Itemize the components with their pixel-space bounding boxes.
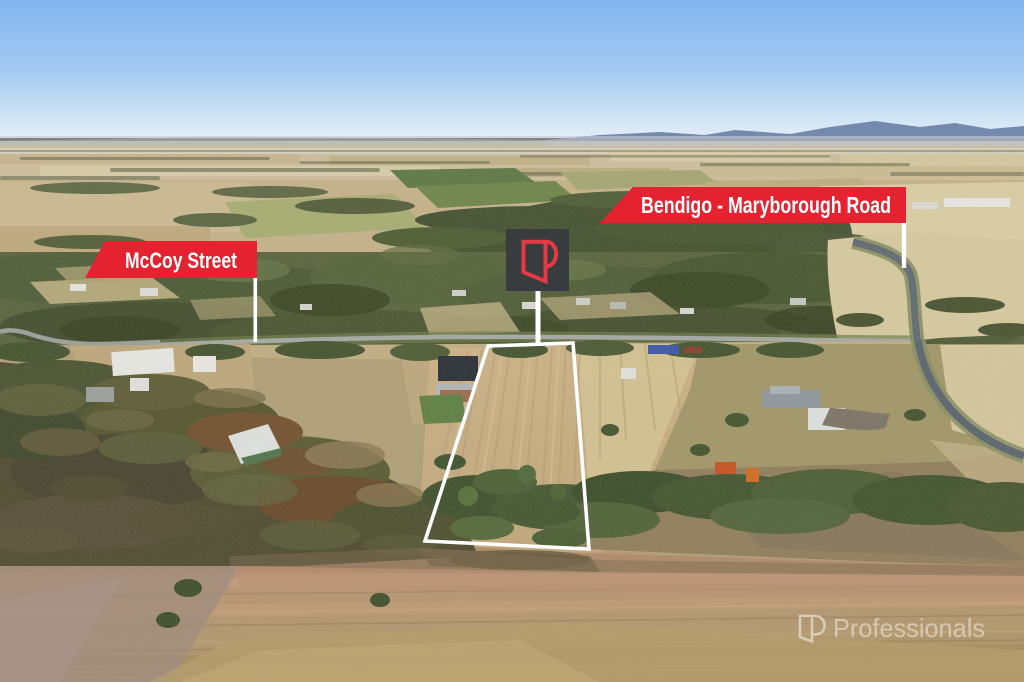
svg-text:McCoy Street: McCoy Street bbox=[125, 248, 238, 273]
svg-text:Professionals: Professionals bbox=[833, 613, 985, 643]
svg-text:Bendigo - Maryborough Road: Bendigo - Maryborough Road bbox=[641, 192, 891, 218]
